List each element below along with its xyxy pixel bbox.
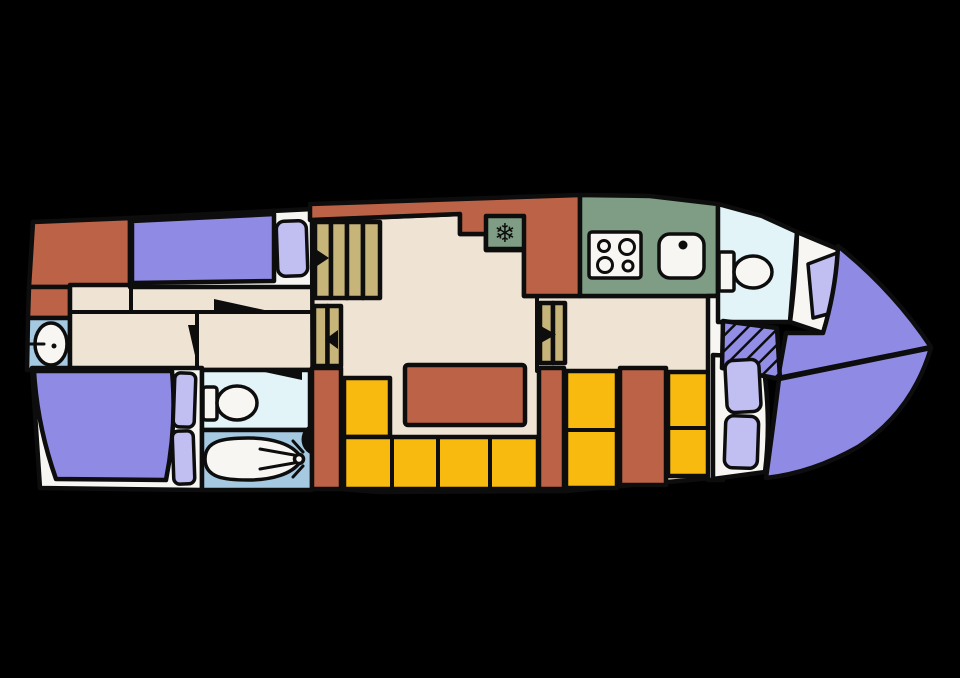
stair-step — [331, 222, 347, 298]
boat-floor-plan: ❄ — [0, 0, 960, 678]
dinette-table — [405, 365, 525, 425]
stove — [589, 232, 641, 278]
vberth-pillow-2 — [724, 415, 759, 468]
seat-backrest-mid — [539, 368, 564, 489]
starboard-berth-pillow-1 — [173, 373, 196, 428]
port-berth-pillow — [276, 220, 308, 276]
bow-toilet-tank — [719, 252, 734, 291]
vberth-pillow-1 — [725, 359, 762, 413]
dinette-bench — [344, 437, 538, 489]
side-steps — [539, 303, 565, 363]
bow-toilet-bowl — [734, 256, 772, 288]
bathtub — [205, 438, 300, 480]
aft-locker-large — [29, 218, 130, 287]
dinette-seat-corner — [344, 378, 390, 437]
snowflake-icon: ❄ — [494, 219, 516, 249]
stair-step — [347, 222, 363, 298]
dinette-backrest-left — [312, 368, 341, 489]
deck-plan-canvas: ❄ — [0, 0, 960, 678]
sink-faucet — [679, 241, 688, 250]
stair-step — [553, 303, 565, 363]
aft-toilet-bowl — [217, 386, 257, 420]
galley-sink — [659, 234, 704, 278]
aft-steps — [314, 306, 341, 366]
main-stairs — [311, 222, 380, 298]
stair-step — [363, 222, 380, 298]
facing-seat-2 — [668, 372, 710, 476]
aft-toilet-tank — [203, 387, 217, 420]
washbasin-drain — [52, 344, 57, 349]
seat-backrest-right — [620, 368, 666, 485]
starboard-berth-mattress — [34, 371, 174, 480]
port-berth-mattress — [132, 214, 274, 283]
aft-locker-small — [28, 287, 70, 318]
bathtub-faucet — [295, 455, 304, 464]
starboard-berth-pillow-2 — [172, 431, 195, 485]
